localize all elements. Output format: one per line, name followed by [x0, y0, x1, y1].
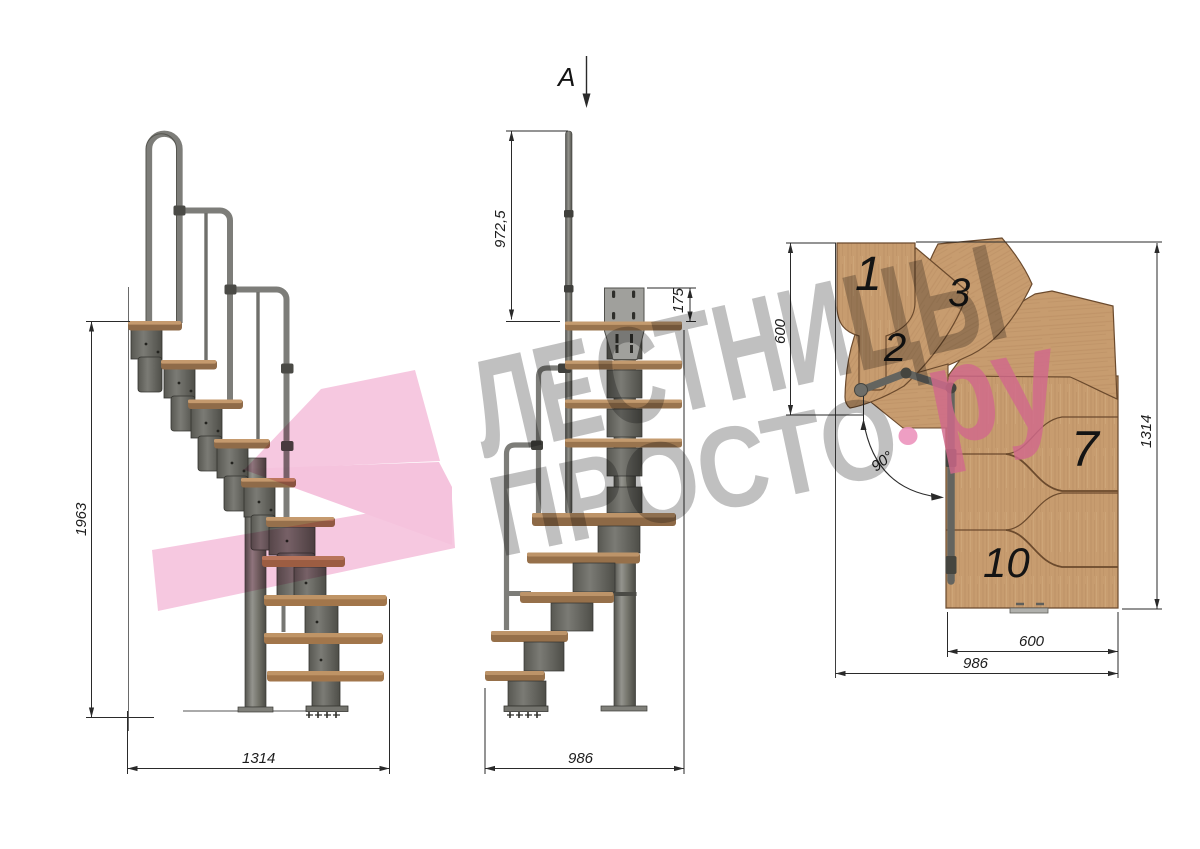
svg-text:10: 10 — [983, 539, 1030, 586]
svg-text:1314: 1314 — [242, 750, 275, 767]
svg-text:А: А — [556, 62, 575, 92]
svg-text:7: 7 — [1071, 421, 1101, 477]
svg-text:1314: 1314 — [1138, 415, 1155, 448]
svg-text:986: 986 — [963, 655, 989, 672]
svg-text:986: 986 — [568, 750, 594, 767]
svg-text:972,5: 972,5 — [492, 210, 509, 248]
svg-text:1963: 1963 — [73, 502, 90, 536]
svg-text:600: 600 — [1019, 633, 1045, 650]
